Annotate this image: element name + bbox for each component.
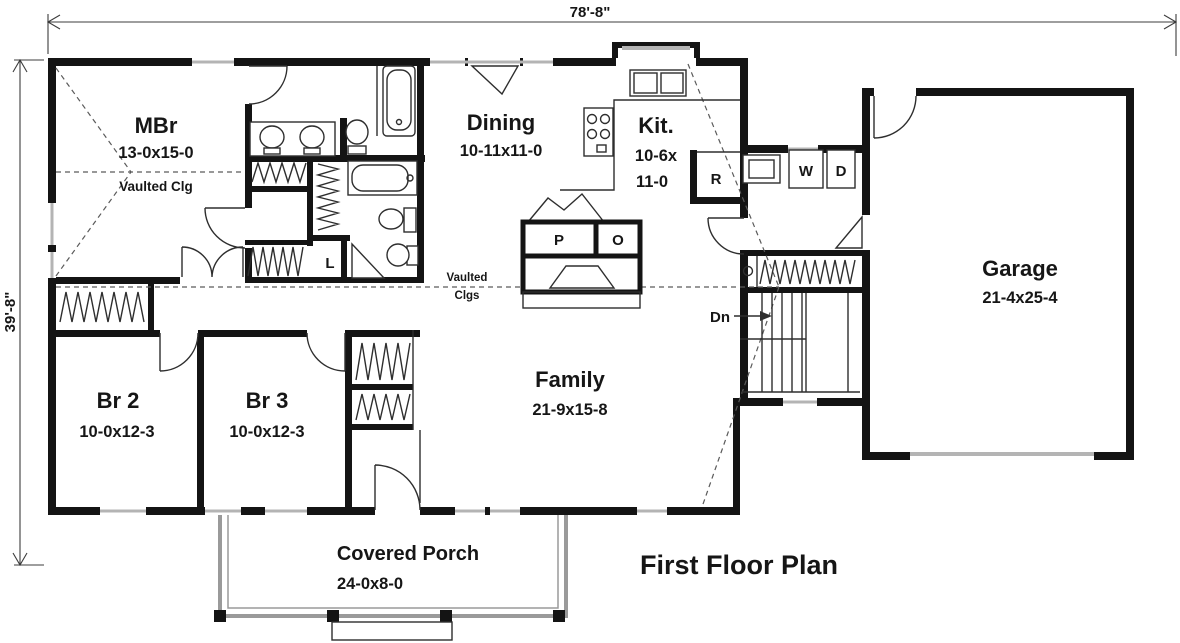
toilet-master-tank (348, 146, 366, 154)
vanity-sink-right-base (304, 148, 320, 154)
garage-name: Garage (982, 256, 1058, 281)
mbr-size: 13-0x15-0 (118, 144, 193, 162)
vaulted-clgs-line1: Vaulted (447, 272, 488, 284)
toilet-hall-tank (404, 208, 416, 232)
br2-size: 10-0x12-3 (79, 423, 154, 441)
pantry-label: P (554, 232, 564, 249)
linen-label: L (325, 255, 334, 272)
depth-dimension-label: 39'-8" (2, 292, 19, 333)
br3-name: Br 3 (246, 388, 289, 413)
stair-risers (740, 293, 860, 392)
kitchen-size-line2: 11-0 (636, 173, 668, 191)
floor-plan-drawing: 78'-8" 39'-8" Dn (0, 0, 1180, 643)
porch-outer-wall (220, 515, 566, 616)
fireplace-deco-lines (528, 194, 604, 222)
shower-basin (387, 70, 411, 130)
plan-title: First Floor Plan (640, 550, 838, 580)
toilet-master-bowl (346, 120, 368, 144)
washer-label: W (799, 163, 814, 180)
porch-steps (332, 622, 452, 640)
vaulted-clgs-line2: Clgs (455, 290, 480, 302)
br3-size: 10-0x12-3 (229, 423, 304, 441)
porch-size: 24-0x8-0 (337, 575, 403, 593)
vanity-sink-left (260, 126, 284, 148)
dining-size: 10-11x11-0 (460, 142, 543, 160)
stairs-down-label: Dn (710, 309, 730, 326)
vanity-sink-left-base (264, 148, 280, 154)
bathtub-basin (352, 165, 408, 191)
stairs: Dn (710, 293, 860, 392)
mbr-name: MBr (135, 113, 178, 138)
stairs-down-arrow-head (760, 311, 772, 321)
fireplace-unit: P O (523, 194, 640, 308)
kitchen-sink (630, 70, 686, 96)
garage-size: 21-4x25-4 (982, 289, 1058, 307)
toilet-hall-bowl (379, 209, 403, 229)
mbr-vaulted-note: Vaulted Clg (119, 179, 193, 194)
kitchen-size-line1: 10-6x (635, 147, 678, 165)
kitchen-name: Kit. (638, 113, 673, 138)
hall-sink-bowl (387, 244, 409, 266)
floor-plan-page: 78'-8" 39'-8" Dn (0, 0, 1180, 643)
refrigerator-label: R (711, 171, 722, 188)
porch-name: Covered Porch (337, 543, 479, 565)
family-name: Family (535, 367, 605, 392)
width-dimension-label: 78'-8" (570, 4, 611, 21)
laundry-fixtures: W D (743, 150, 855, 188)
vanity-sink-right (300, 126, 324, 148)
family-size: 21-9x15-8 (532, 401, 607, 419)
dining-name: Dining (467, 110, 535, 135)
dryer-label: D (836, 163, 847, 180)
oven-label: O (612, 232, 624, 249)
room-labels: MBr 13-0x15-0 Vaulted Clg Dining 10-11x1… (79, 110, 1058, 593)
br2-name: Br 2 (97, 388, 140, 413)
